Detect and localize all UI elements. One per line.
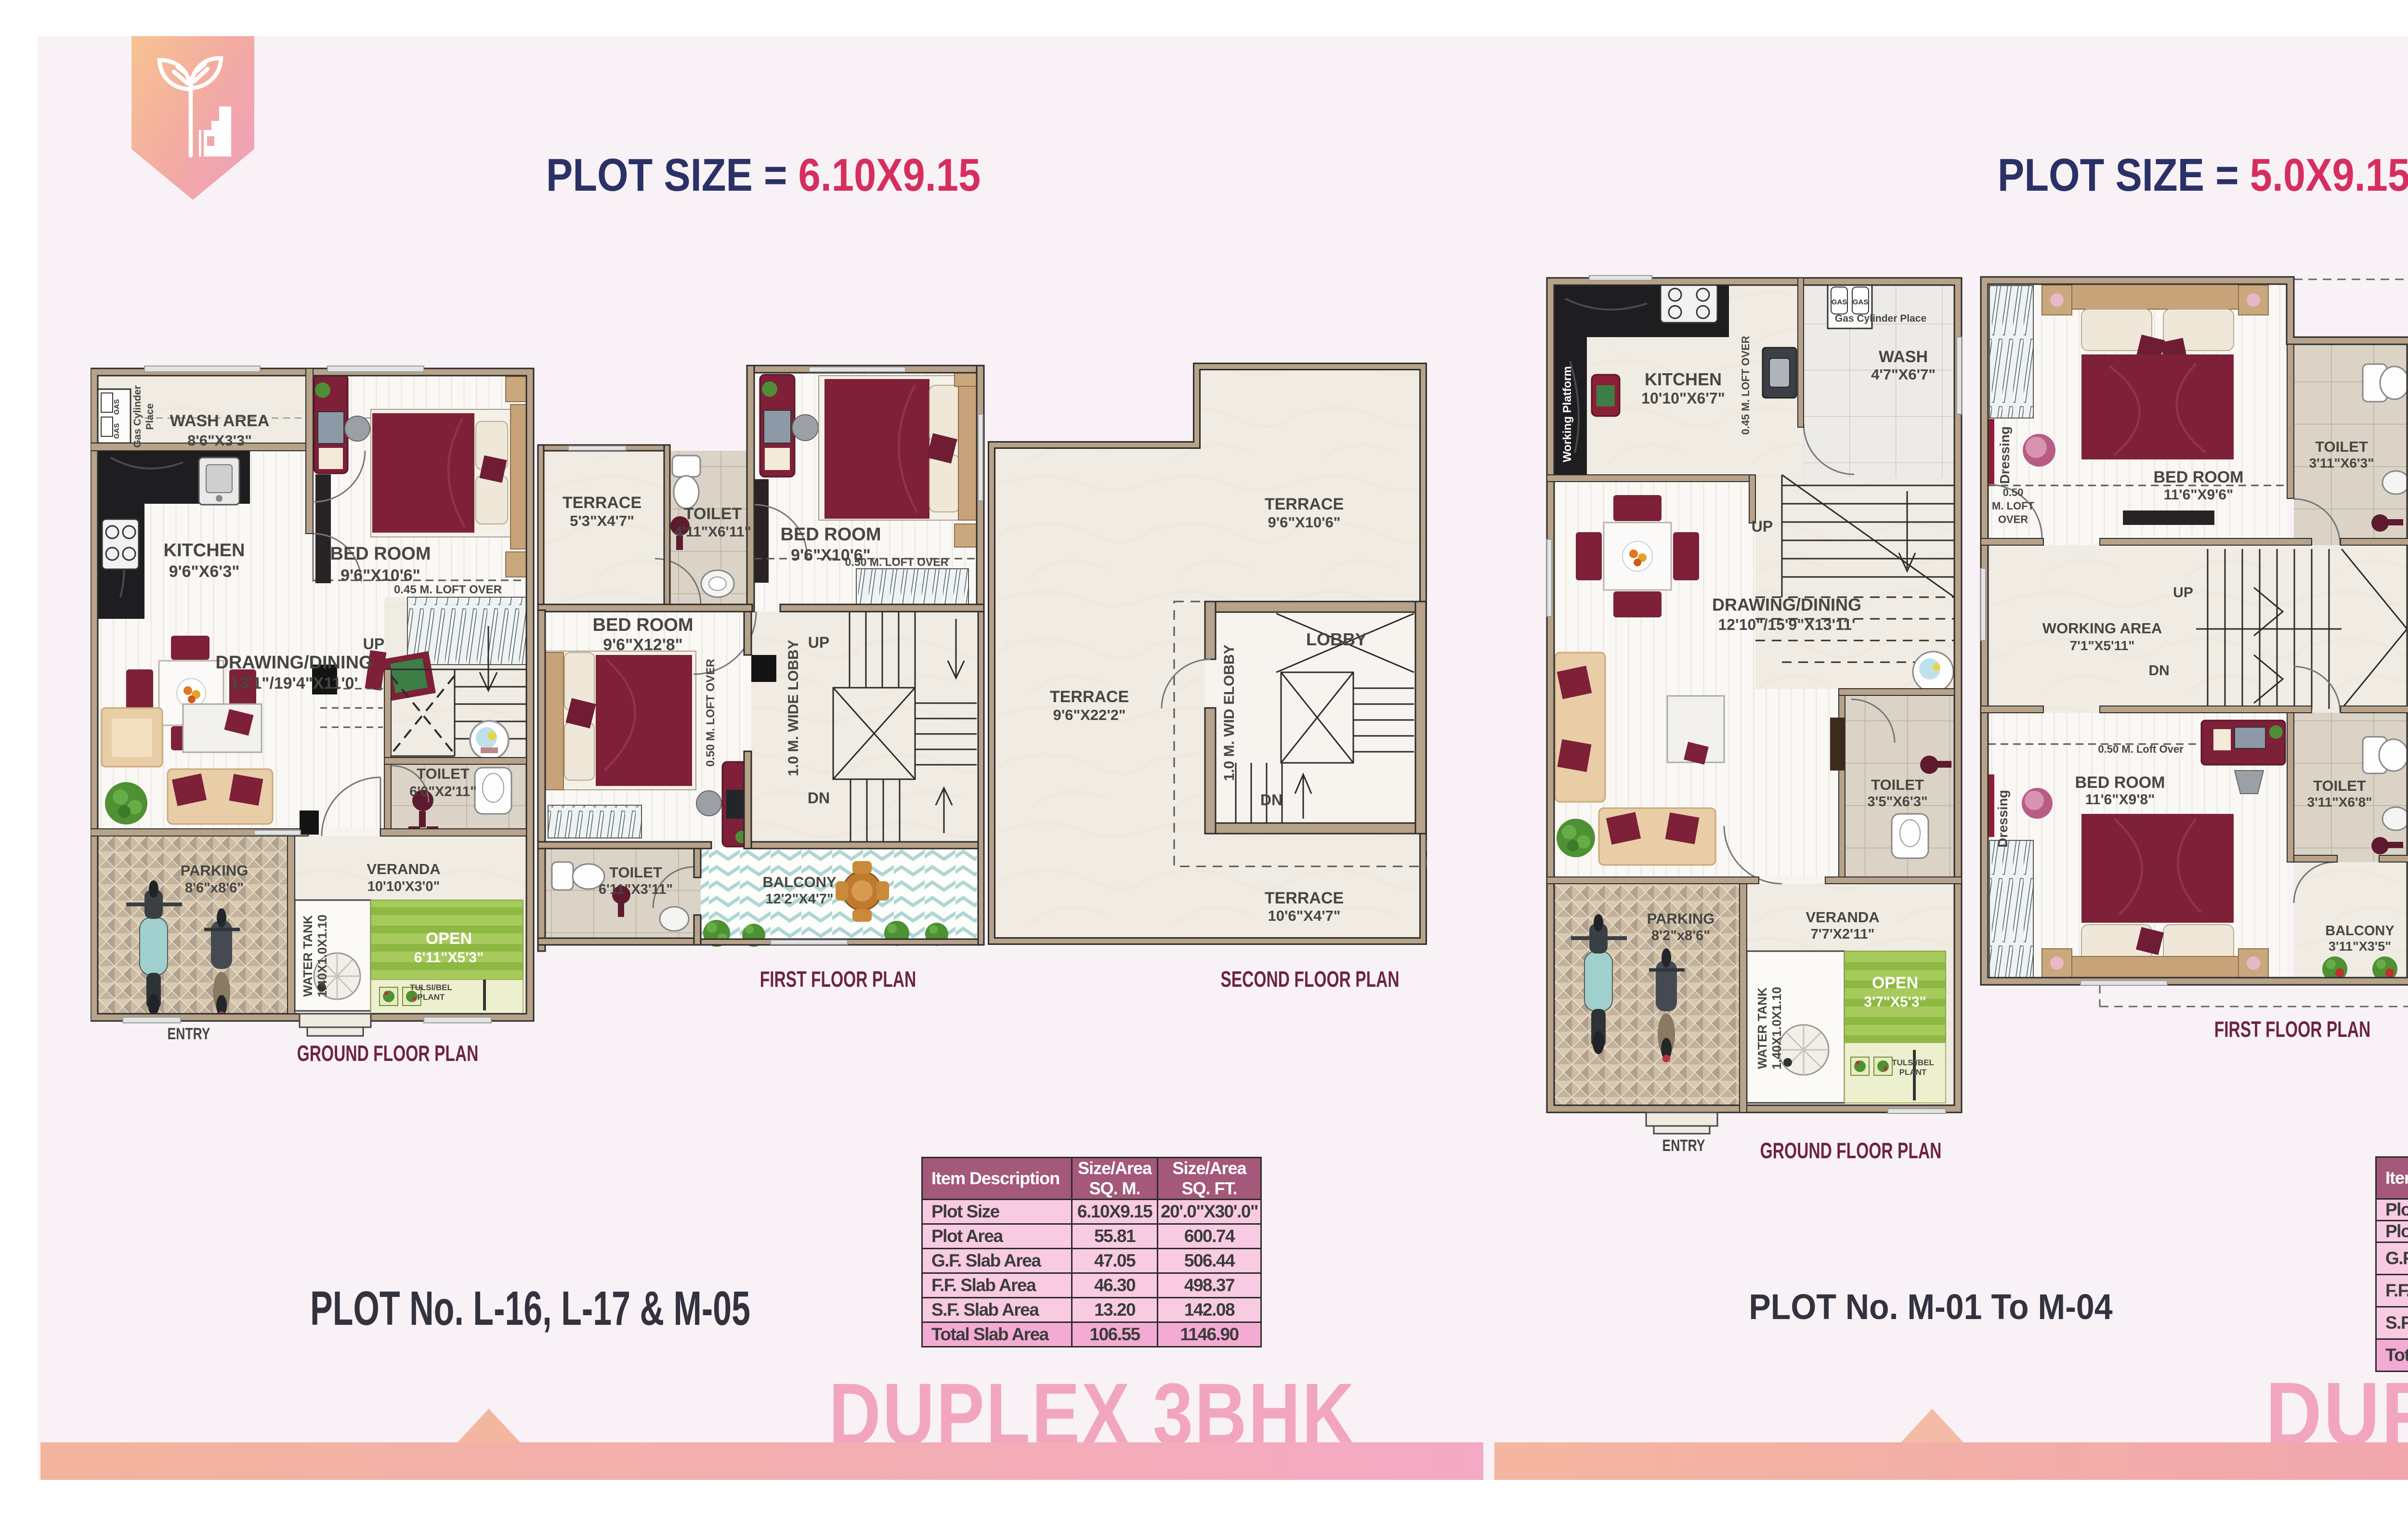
svg-text:Gas Cylinder: Gas Cylinder (132, 385, 143, 448)
svg-text:3'7"X5'3": 3'7"X5'3" (1864, 994, 1926, 1010)
svg-text:BED ROOM: BED ROOM (781, 524, 881, 545)
svg-text:3'11"X6'3": 3'11"X6'3" (2309, 456, 2374, 471)
svg-text:BALCONY: BALCONY (762, 874, 837, 890)
svg-text:Place: Place (144, 404, 156, 430)
svg-text:Working Platform: Working Platform (1561, 366, 1574, 462)
svg-text:6'11"X3'11": 6'11"X3'11" (599, 882, 673, 897)
svg-text:TOILET: TOILET (2313, 777, 2366, 794)
svg-text:13'1"/19'4"X11'0': 13'1"/19'4"X11'0' (230, 674, 358, 693)
svg-text:3'11"X3'5": 3'11"X3'5" (2329, 939, 2391, 954)
svg-text:OPEN: OPEN (1872, 974, 1918, 992)
svg-text:Dressing: Dressing (1997, 426, 2012, 484)
svg-text:DRAWING/DINING: DRAWING/DINING (1712, 595, 1861, 615)
svg-text:BALCONY: BALCONY (2325, 923, 2394, 939)
svg-text:DN: DN (808, 789, 830, 807)
svg-text:0.50 M. LOFT OVER: 0.50 M. LOFT OVER (704, 659, 717, 767)
svg-text:1.40X1.0X1.10: 1.40X1.0X1.10 (1769, 987, 1784, 1070)
svg-text:8'2"x8'6": 8'2"x8'6" (1651, 928, 1710, 943)
svg-text:VERANDA: VERANDA (366, 861, 440, 877)
svg-text:6'11"X5'3": 6'11"X5'3" (414, 950, 484, 966)
svg-text:TOILET: TOILET (1871, 776, 1924, 793)
svg-text:M. LOFT: M. LOFT (1992, 500, 2035, 512)
svg-text:BED ROOM: BED ROOM (593, 615, 694, 635)
svg-text:UP: UP (1752, 518, 1773, 535)
svg-text:TERRACE: TERRACE (563, 494, 641, 512)
svg-text:10'10"X6'7": 10'10"X6'7" (1641, 390, 1725, 407)
svg-text:TERRACE: TERRACE (1050, 688, 1129, 706)
svg-text:1.0 M. WID ELOBBY: 1.0 M. WID ELOBBY (1221, 644, 1237, 781)
svg-text:12'10"/15'9"X13'11': 12'10"/15'9"X13'11' (1718, 616, 1855, 633)
svg-text:0.50 M. Loft Over: 0.50 M. Loft Over (2098, 743, 2184, 755)
svg-text:BED ROOM: BED ROOM (2154, 468, 2244, 486)
svg-text:WORKING AREA: WORKING AREA (2042, 620, 2162, 637)
svg-text:PARKING: PARKING (181, 862, 249, 879)
svg-text:0.45 M. LOFT OVER: 0.45 M. LOFT OVER (394, 583, 502, 596)
svg-text:VERANDA: VERANDA (1806, 909, 1879, 926)
svg-text:WATER TANK: WATER TANK (301, 915, 315, 997)
svg-text:DN: DN (2148, 663, 2169, 679)
svg-text:GAS: GAS (1853, 298, 1869, 306)
svg-text:7'7'X2'11": 7'7'X2'11" (1811, 927, 1875, 942)
svg-text:GAS: GAS (113, 423, 121, 439)
svg-text:UP: UP (2173, 585, 2193, 601)
svg-text:Gas Cylinder Place: Gas Cylinder Place (1835, 313, 1926, 324)
svg-text:TULSI/BEL: TULSI/BEL (410, 983, 452, 992)
svg-text:TERRACE: TERRACE (1265, 495, 1344, 513)
svg-text:9'6"X12'8": 9'6"X12'8" (603, 636, 683, 654)
svg-text:WASH AREA: WASH AREA (170, 412, 270, 430)
svg-text:11'6"X9'6": 11'6"X9'6" (2164, 487, 2234, 503)
svg-text:TERRACE: TERRACE (1265, 889, 1344, 907)
svg-text:TOILET: TOILET (417, 765, 470, 782)
svg-text:TULSI/BEL: TULSI/BEL (1892, 1058, 1934, 1067)
svg-text:OPEN: OPEN (426, 929, 472, 948)
svg-text:PARKING: PARKING (1647, 910, 1715, 927)
svg-text:Dressing: Dressing (1995, 790, 2010, 848)
svg-text:DRAWING/DINING: DRAWING/DINING (215, 653, 373, 673)
svg-text:3'5"X6'3": 3'5"X6'3" (1867, 794, 1927, 810)
svg-text:5'3"X4'7": 5'3"X4'7" (570, 512, 634, 529)
svg-text:TOILET: TOILET (609, 864, 662, 881)
svg-text:9'6"X6'3": 9'6"X6'3" (169, 562, 240, 581)
svg-text:9'6"X10'6": 9'6"X10'6" (1268, 514, 1340, 531)
svg-text:OVER: OVER (1998, 513, 2028, 525)
svg-text:11'6"X9'8": 11'6"X9'8" (2085, 792, 2155, 808)
svg-text:10'10'X3'0": 10'10'X3'0" (367, 879, 440, 894)
svg-text:WASH: WASH (1879, 348, 1928, 366)
svg-text:9'6"X10'6": 9'6"X10'6" (340, 566, 420, 585)
svg-text:9'6"X22'2": 9'6"X22'2" (1053, 706, 1125, 723)
svg-text:TOILET: TOILET (684, 505, 742, 523)
svg-text:8'6"x8'6": 8'6"x8'6" (185, 880, 244, 896)
svg-text:0.45 M. LOFT OVER: 0.45 M. LOFT OVER (1740, 336, 1752, 434)
svg-text:GAS: GAS (113, 399, 121, 415)
svg-text:LOBBY: LOBBY (1306, 629, 1367, 649)
svg-text:WATER TANK: WATER TANK (1755, 987, 1769, 1069)
svg-text:6'0"X2'11": 6'0"X2'11" (409, 784, 477, 799)
svg-text:BED ROOM: BED ROOM (2075, 773, 2165, 792)
svg-text:UP: UP (363, 635, 384, 653)
svg-text:UP: UP (808, 634, 829, 651)
svg-text:0.50 M. LOFT OVER: 0.50 M. LOFT OVER (845, 556, 949, 568)
svg-text:8'6"X3'3": 8'6"X3'3" (187, 432, 252, 449)
svg-text:4'11"X6'11": 4'11"X6'11" (674, 524, 751, 540)
svg-text:12'2"X4'7": 12'2"X4'7" (765, 891, 833, 907)
svg-text:BED ROOM: BED ROOM (330, 544, 431, 564)
svg-text:PLANT: PLANT (418, 993, 445, 1002)
svg-text:4'7"X6'7": 4'7"X6'7" (1871, 366, 1936, 383)
svg-text:3'11"X6'8": 3'11"X6'8" (2307, 795, 2372, 810)
svg-text:1.40X1.0X1.10: 1.40X1.0X1.10 (315, 915, 329, 997)
svg-text:DN: DN (1260, 791, 1283, 809)
svg-text:10'6"X4'7": 10'6"X4'7" (1268, 907, 1340, 924)
svg-text:KITCHEN: KITCHEN (164, 540, 245, 561)
svg-text:KITCHEN: KITCHEN (1645, 369, 1722, 389)
svg-text:1.0 M. WIDE LOBBY: 1.0 M. WIDE LOBBY (785, 640, 801, 776)
svg-text:TOILET: TOILET (2315, 438, 2368, 455)
svg-text:GAS: GAS (1832, 298, 1847, 306)
svg-text:7'1"X5'11": 7'1"X5'11" (2070, 638, 2135, 653)
svg-text:PLANT: PLANT (1899, 1068, 1927, 1077)
svg-text:0.50: 0.50 (2003, 486, 2024, 498)
